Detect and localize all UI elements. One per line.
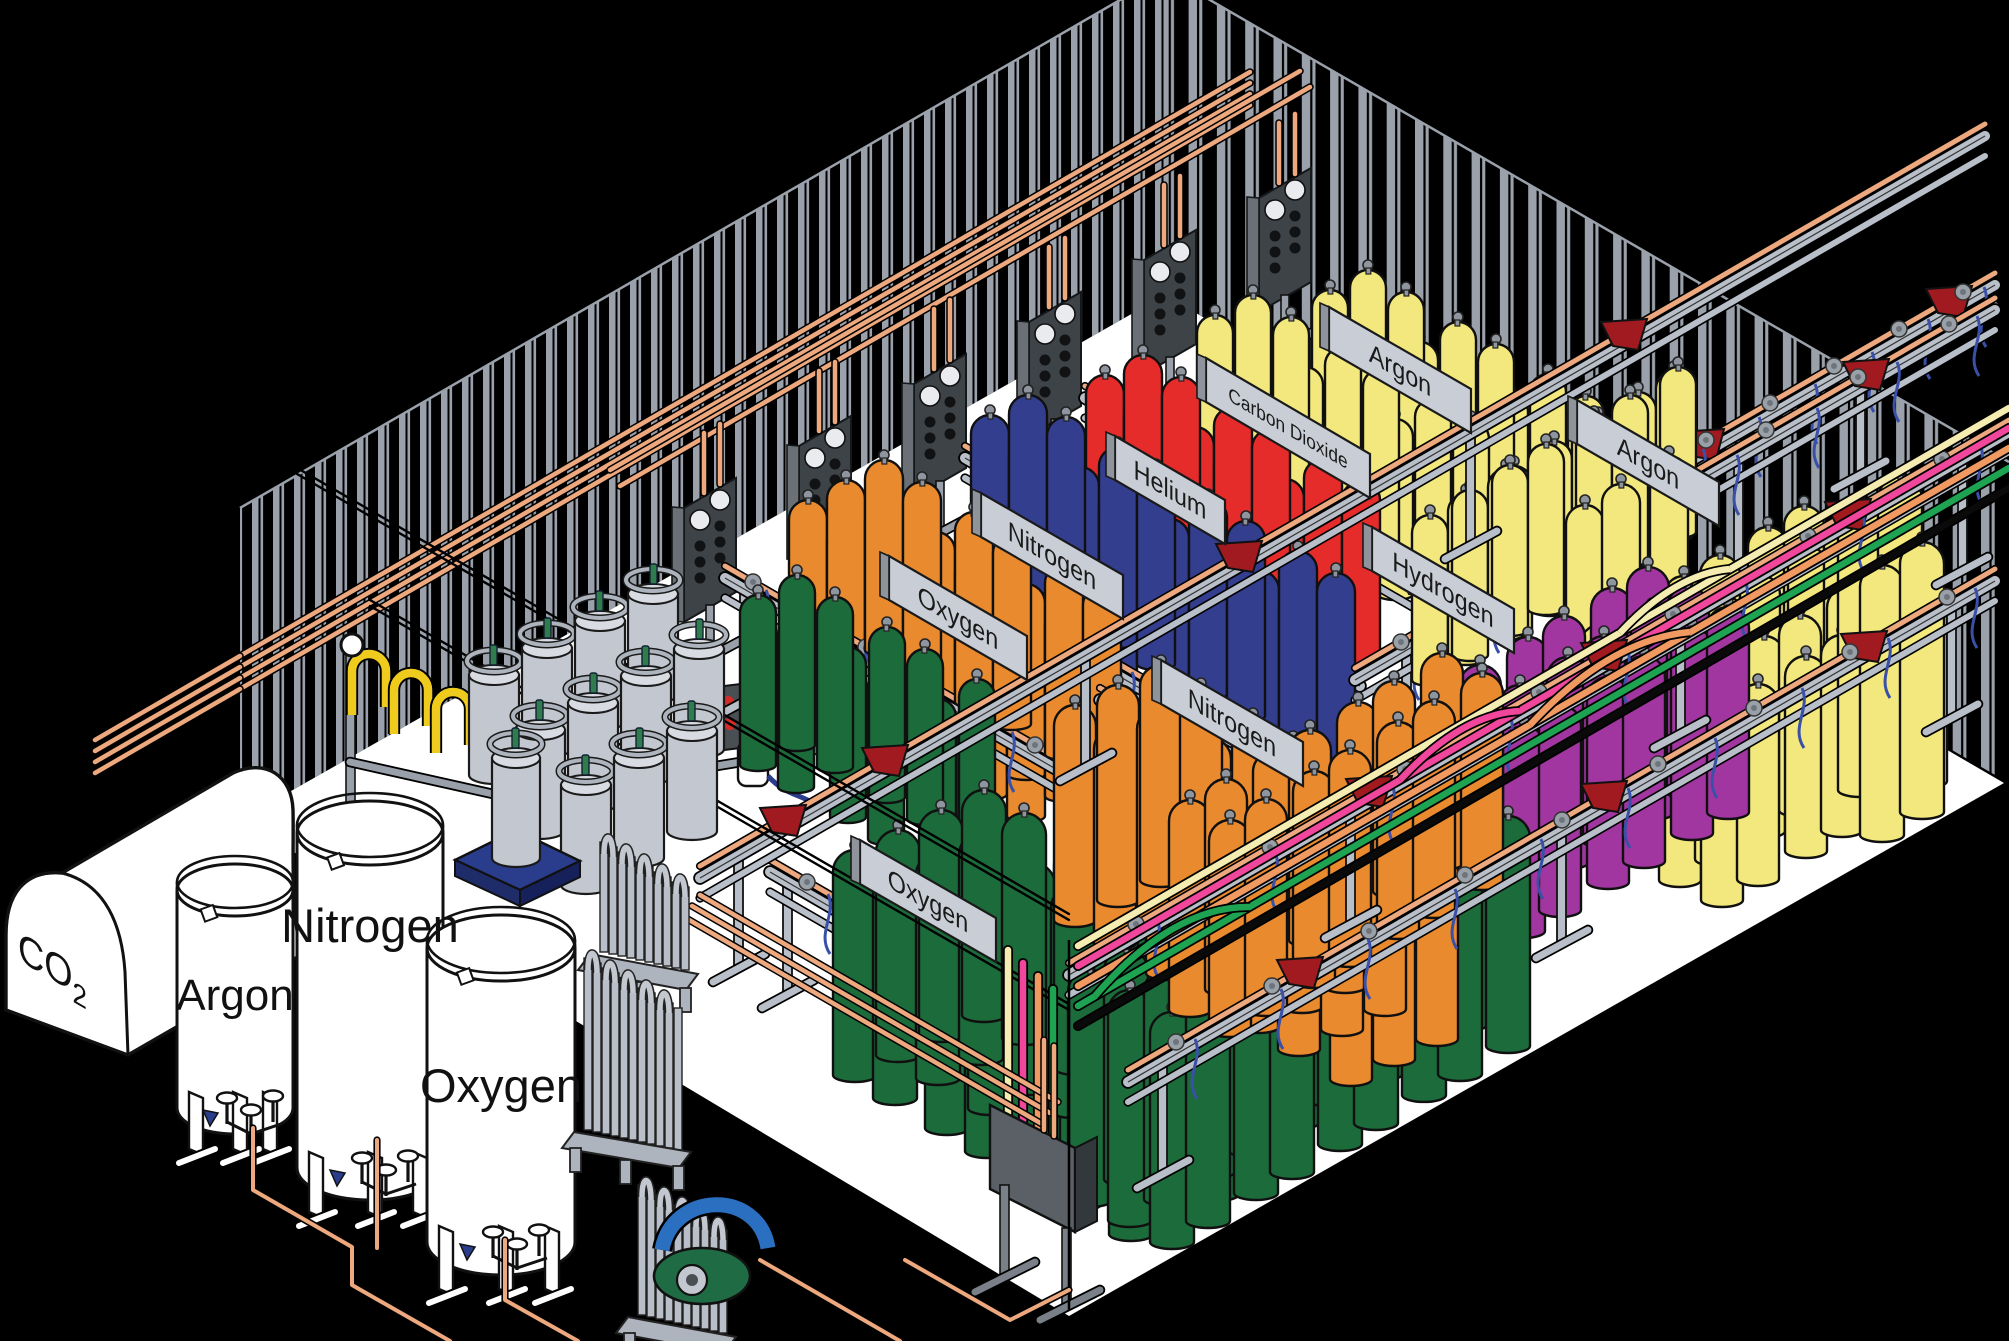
svg-text:Argon: Argon [176, 971, 293, 1020]
svg-text:Nitrogen: Nitrogen [281, 899, 459, 952]
svg-text:Oxygen: Oxygen [420, 1059, 582, 1112]
